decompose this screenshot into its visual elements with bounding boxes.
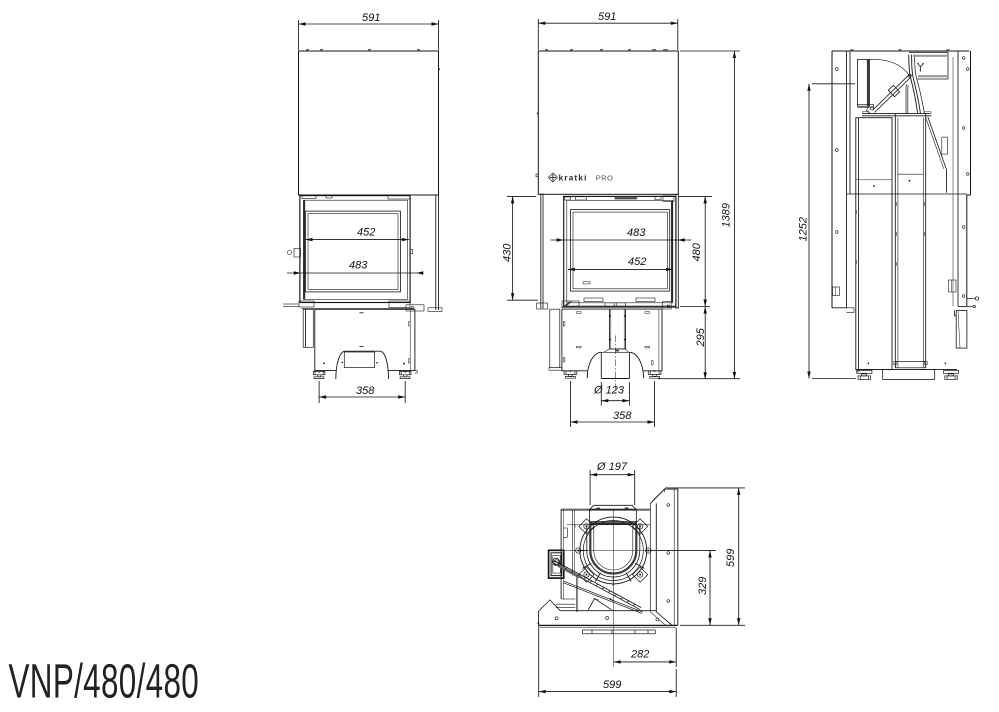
svg-text:483: 483 [627,227,646,239]
svg-text:452: 452 [357,227,375,239]
svg-text:599: 599 [603,679,621,691]
svg-text:1252: 1252 [798,217,810,241]
svg-text:591: 591 [362,12,380,24]
svg-text:Ø 123: Ø 123 [593,385,625,397]
svg-text:358: 358 [613,410,632,422]
svg-text:VNP/480/480: VNP/480/480 [9,654,200,708]
svg-text:483: 483 [349,260,368,272]
svg-text:480: 480 [691,242,703,261]
svg-text:599: 599 [725,549,737,567]
svg-text:358: 358 [356,385,375,397]
svg-text:329: 329 [697,577,709,595]
svg-text:Ø 197: Ø 197 [596,461,628,473]
svg-text:282: 282 [630,649,649,661]
svg-text:295: 295 [695,327,707,347]
svg-text:430: 430 [502,243,514,262]
svg-text:1389: 1389 [720,203,732,227]
svg-text:PRO: PRO [596,173,614,182]
svg-text:452: 452 [628,256,646,268]
svg-text:kratki: kratki [559,172,588,182]
svg-text:591: 591 [598,11,616,23]
